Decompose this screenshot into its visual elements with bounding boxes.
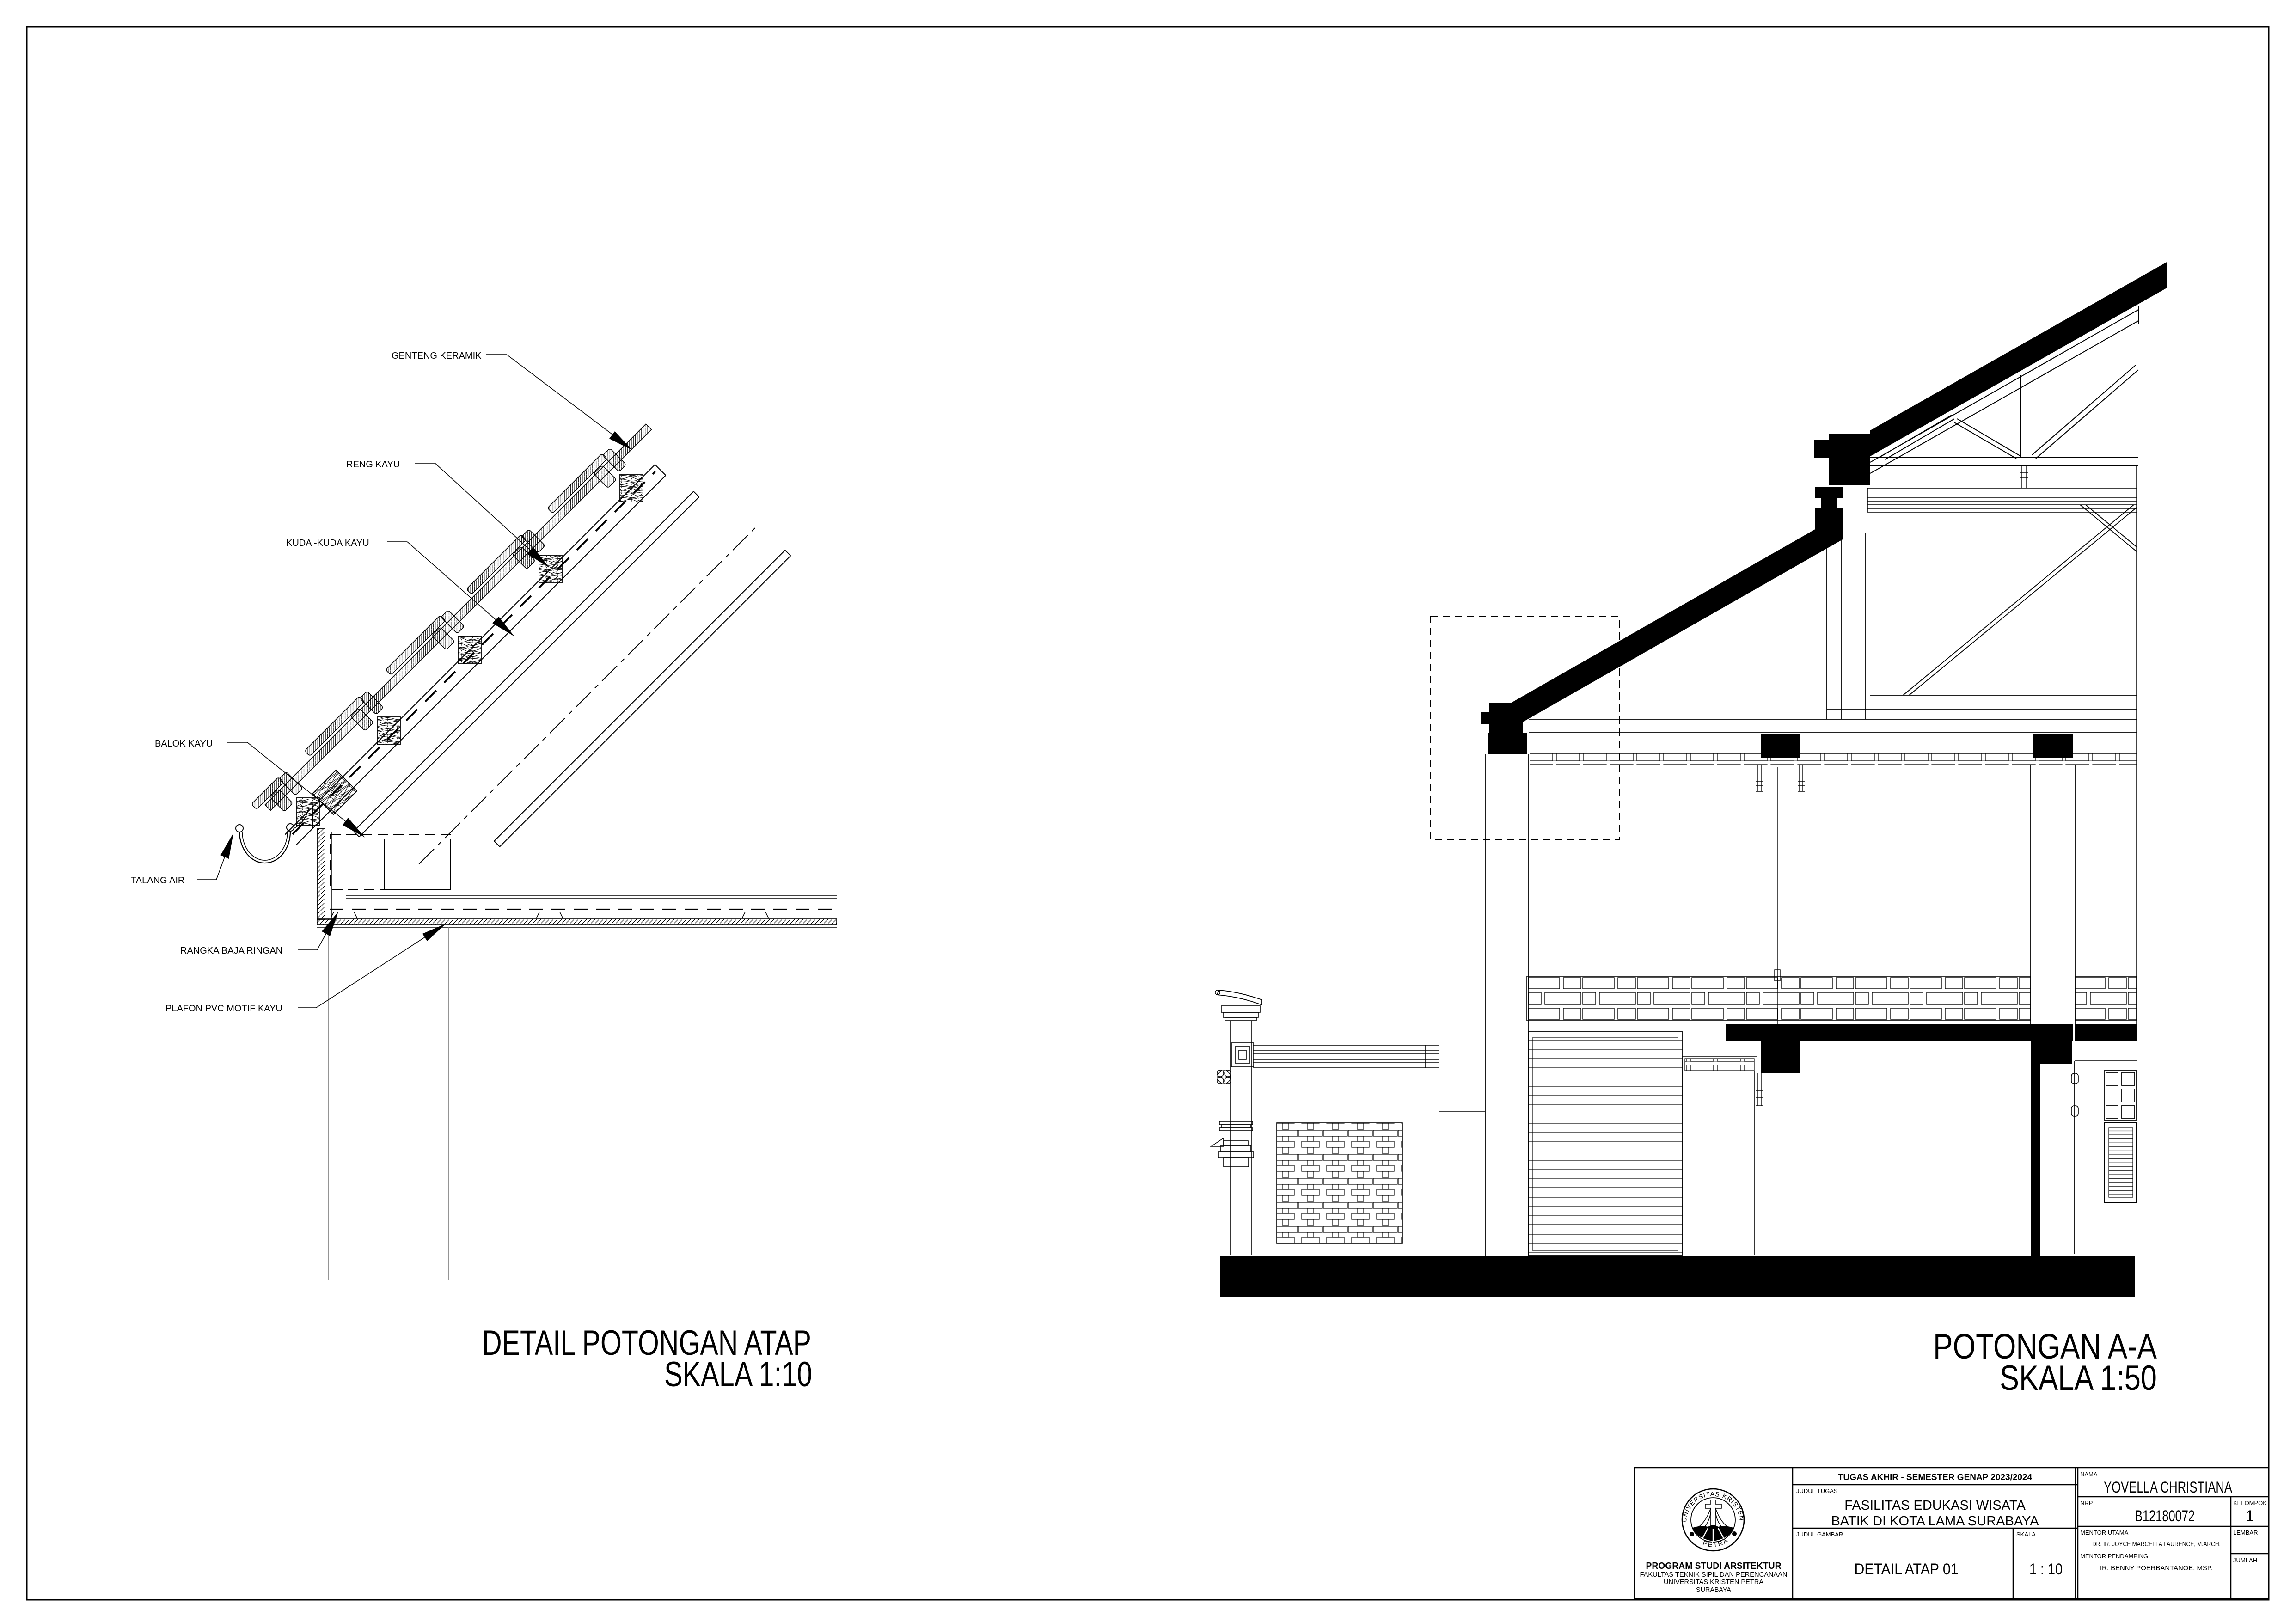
svg-text:MENTOR PENDAMPING: MENTOR PENDAMPING	[2080, 1553, 2148, 1560]
svg-text:GENTENG KERAMIK: GENTENG KERAMIK	[392, 351, 482, 361]
svg-text:DR. IR. JOYCE MARCELLA LAURENC: DR. IR. JOYCE MARCELLA LAURENCE, M.ARCH.	[2092, 1540, 2221, 1548]
svg-text:TUGAS AKHIR - SEMESTER GENAP 2: TUGAS AKHIR - SEMESTER GENAP 2023/2024	[1838, 1473, 2033, 1482]
svg-text:B12180072: B12180072	[2135, 1507, 2195, 1525]
svg-text:NAMA: NAMA	[2080, 1471, 2098, 1478]
svg-text:JUDUL TUGAS: JUDUL TUGAS	[1796, 1487, 1838, 1494]
svg-text:IR. BENNY POERBANTANOE, MSP.: IR. BENNY POERBANTANOE, MSP.	[2100, 1564, 2213, 1572]
svg-text:FAKULTAS TEKNIK SIPIL DAN PERE: FAKULTAS TEKNIK SIPIL DAN PERENCANAAN	[1640, 1571, 1788, 1579]
svg-text:KELOMPOK: KELOMPOK	[2233, 1500, 2267, 1506]
svg-text:MENTOR UTAMA: MENTOR UTAMA	[2080, 1529, 2129, 1536]
svg-text:BALOK KAYU: BALOK KAYU	[155, 739, 213, 749]
svg-text:SKALA 1:50: SKALA 1:50	[2000, 1359, 2157, 1398]
svg-text:PLAFON PVC MOTIF KAYU: PLAFON PVC MOTIF KAYU	[165, 1004, 282, 1014]
svg-text:UNIVERSITAS KRISTEN PETRA: UNIVERSITAS KRISTEN PETRA	[1664, 1578, 1763, 1586]
svg-text:YOVELLA CHRISTIANA: YOVELLA CHRISTIANA	[2104, 1479, 2232, 1496]
svg-text:JUDUL GAMBAR: JUDUL GAMBAR	[1796, 1531, 1843, 1538]
svg-text:1: 1	[2246, 1507, 2254, 1525]
svg-text:TALANG AIR: TALANG AIR	[131, 875, 184, 886]
svg-text:KUDA -KUDA KAYU: KUDA -KUDA KAYU	[286, 538, 369, 548]
svg-text:PROGRAM STUDI ARSITEKTUR: PROGRAM STUDI ARSITEKTUR	[1646, 1561, 1782, 1571]
svg-text:RANGKA BAJA RINGAN: RANGKA BAJA RINGAN	[180, 946, 282, 956]
svg-text:RENG KAYU: RENG KAYU	[346, 459, 400, 470]
svg-text:NRP: NRP	[2080, 1500, 2093, 1506]
svg-text:SKALA: SKALA	[2016, 1531, 2036, 1538]
svg-text:SURABAYA: SURABAYA	[1696, 1586, 1731, 1594]
svg-text:BATIK DI KOTA LAMA SURABAYA: BATIK DI KOTA LAMA SURABAYA	[1831, 1514, 2039, 1529]
svg-text:DETAIL ATAP 01: DETAIL ATAP 01	[1855, 1561, 1959, 1578]
svg-text:1 : 10: 1 : 10	[2029, 1561, 2063, 1578]
svg-text:SKALA 1:10: SKALA 1:10	[664, 1355, 812, 1394]
svg-text:LEMBAR: LEMBAR	[2233, 1529, 2258, 1536]
svg-text:JUMLAH: JUMLAH	[2233, 1557, 2257, 1564]
svg-text:FASILITAS EDUKASI WISATA: FASILITAS EDUKASI WISATA	[1844, 1498, 2026, 1513]
